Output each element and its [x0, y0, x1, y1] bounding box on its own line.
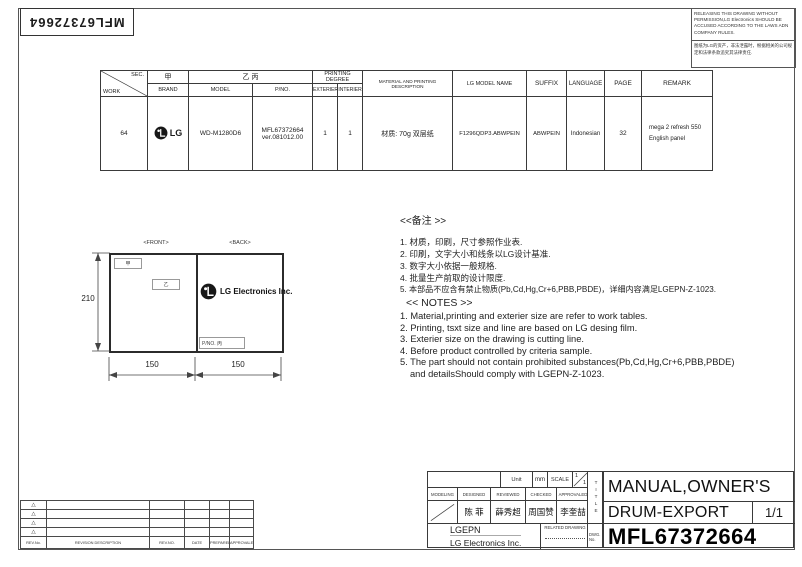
- spec-table: SEC. WORK 甲 乙 丙 PRINTING DEGREE MATERIAL…: [100, 70, 713, 171]
- scale-numerator: 1: [575, 473, 578, 479]
- title-block-grid: Unit mm SCALE 1 1 MODELING DESIGNED REVI…: [427, 471, 588, 548]
- note-en-5-continuation: and detailsShould comply with LGEPN-Z-10…: [400, 369, 745, 381]
- sec-header: SEC.: [131, 72, 144, 78]
- modeling-signature-cell: [428, 501, 458, 524]
- checked-header: CHECKED: [526, 488, 557, 501]
- company-short: LGEPN: [450, 525, 521, 536]
- note-en-2: 2. Printing, tsxt size and line are base…: [400, 323, 745, 335]
- jia-header: 甲: [148, 71, 189, 84]
- dim-back-width-label: 150: [218, 360, 258, 369]
- page-value: 32: [605, 97, 642, 171]
- title-vertical-cell: TITLE: [588, 472, 604, 524]
- designed-header: DESIGNED: [458, 488, 491, 501]
- pno-value-line2: ver.081012.00: [253, 134, 312, 141]
- unit-value: mm: [533, 472, 548, 488]
- prepared-header: PREPARED: [210, 537, 230, 549]
- scale-denominator: 1: [583, 480, 586, 486]
- designed-signature: 陈 菲: [458, 501, 491, 524]
- revision-row: △: [21, 528, 254, 537]
- note-en-1: 1. Material,printing and exterier size a…: [400, 311, 745, 323]
- dim-front-width-label: 150: [132, 360, 172, 369]
- title-block-right: MANUAL,OWNER'S DRUM-EXPORT 1/1 MFL673726…: [603, 471, 794, 548]
- remark-cell: mega 2 refresh 550 English panel: [642, 97, 713, 171]
- doc-title-line2: DRUM-EXPORT: [604, 502, 753, 524]
- pno-cell: MFL67372664 ver.081012.00: [253, 97, 313, 171]
- part-number-stamp-text: MFL67372664: [29, 15, 125, 30]
- unit-label: Unit: [501, 472, 533, 488]
- dim-height-label: 210: [78, 294, 98, 303]
- revision-header-row: REV.No. REVISION DESCRIPTION REV.NO. DAT…: [21, 537, 254, 549]
- note-cn-5: 5. 本部品不应含有禁止物质(Pb,Cd,Hg,Cr+6,PBB,PBDE)，详…: [400, 284, 735, 296]
- company-cell: LGEPN LG Electronics Inc.: [428, 524, 541, 549]
- confidentiality-warning-box: RELEASING THIS DRAWING WITHOUT PERMISSIO…: [691, 8, 796, 68]
- dimension-lines: [80, 233, 295, 393]
- lg-logo-word: LG: [170, 128, 183, 138]
- notes-english-title: << NOTES >>: [406, 297, 745, 309]
- revision-triangle-icon: △: [31, 520, 35, 526]
- language-value: Indonesian: [567, 97, 605, 171]
- rev-no-header: REV.No.: [21, 537, 47, 549]
- scale-value-cell: 1 1: [573, 472, 588, 488]
- notes-chinese-title: <<备注 >>: [400, 212, 735, 227]
- note-cn-1: 1. 材质，印刷，尺寸参照作业表.: [400, 236, 735, 248]
- revision-triangle-icon: △: [31, 502, 35, 508]
- sec-work-diagonal-cell: SEC. WORK: [101, 71, 148, 97]
- note-cn-3: 3. 数字大小依据一般规格.: [400, 260, 735, 272]
- warning-text-english: RELEASING THIS DRAWING WITHOUT PERMISSIO…: [692, 9, 795, 41]
- exterier-value: 1: [313, 97, 338, 171]
- remark-line1: mega 2 refresh 550: [649, 125, 712, 131]
- model-header: MODEL: [189, 84, 253, 97]
- brand-header: BRAND: [148, 84, 189, 97]
- material-value: 材质: 70g 双层纸: [363, 97, 453, 171]
- note-cn-2: 2. 印刷，文字大小和线条以LG设计基准.: [400, 248, 735, 260]
- dwg-number-cell: MFL67372664: [604, 524, 795, 549]
- revision-row: △: [21, 519, 254, 528]
- notes-english: << NOTES >> 1. Material,printing and ext…: [400, 297, 745, 381]
- lg-model-name-header: LG MODEL NAME: [453, 71, 527, 97]
- work-header: WORK: [103, 89, 120, 95]
- language-header: LANGUAGE: [567, 71, 605, 97]
- modeling-header: MODELING: [428, 488, 458, 501]
- lg-model-name-value: F1296QDP3.ABWPEIN: [453, 97, 527, 171]
- interier-header: INTERIER: [338, 84, 363, 97]
- related-drawing-cell: RELATED DRAWING: [541, 524, 589, 549]
- title-vertical-label: TITLE: [594, 480, 599, 515]
- revision-table: △ △ △ △ REV.No. REVISION DESCRIPTION REV…: [20, 500, 254, 549]
- yi-bing-header: 乙 丙: [189, 71, 313, 84]
- title-block-label-column: TITLE DWG. No.: [587, 471, 603, 548]
- revision-triangle-icon: △: [31, 511, 35, 517]
- revision-row: △: [21, 501, 254, 510]
- suffix-value: ABWPEIN: [527, 97, 567, 171]
- doc-title-line1: MANUAL,OWNER'S: [604, 472, 795, 502]
- related-drawing-label: RELATED DRAWING: [544, 525, 585, 530]
- pno-value-line1: MFL67372664: [253, 127, 312, 134]
- date-header: DATE: [185, 537, 210, 549]
- related-drawing-line: [545, 538, 586, 539]
- revision-triangle-icon: △: [31, 529, 35, 535]
- drawing-sheet: MFL67372664 RELEASING THIS DRAWING WITHO…: [0, 0, 802, 567]
- reviewed-header: REVIEWED: [491, 488, 526, 501]
- remark-header: REMARK: [642, 71, 713, 97]
- suffix-header: SUFFIX: [527, 71, 567, 97]
- exterier-header: EXTERIER: [313, 84, 338, 97]
- interier-value: 1: [338, 97, 363, 171]
- scale-label: SCALE: [548, 472, 573, 488]
- brand-cell: LG: [148, 97, 189, 171]
- reviewed-signature: 薛秀超: [491, 501, 526, 524]
- dwg-number-text: MFL67372664: [608, 524, 757, 549]
- note-en-3: 3. Exterier size on the drawing is cutti…: [400, 334, 745, 346]
- revision-description-header: REVISION DESCRIPTION: [47, 537, 150, 549]
- sheet-number: 1/1: [753, 502, 795, 524]
- note-en-4: 4. Before product controlled by criteria…: [400, 346, 745, 358]
- rev-no2-header: REV.NO.: [150, 537, 185, 549]
- approvaled-header: APPROVALED: [557, 488, 589, 501]
- page-header: PAGE: [605, 71, 642, 97]
- warning-text-chinese: 图纸为LG的资产，非法泄露时，根据相关的公司规定和法律条款追究其法律责任.: [692, 41, 795, 65]
- notes-chinese: <<备注 >> 1. 材质，印刷，尺寸参照作业表. 2. 印刷，文字大小和线条以…: [400, 212, 735, 296]
- printing-degree-header: PRINTING DEGREE: [313, 71, 363, 84]
- company-full: LG Electronics Inc.: [450, 538, 521, 548]
- note-en-5: 5. The part should not contain prohibite…: [400, 357, 745, 369]
- slash-icon: [428, 501, 457, 524]
- material-header: MATERIAL AND PRINTING DESCRIPTION: [363, 71, 453, 97]
- lg-logo-icon: [154, 126, 168, 140]
- doc-title-text1: MANUAL,OWNER'S: [608, 476, 771, 497]
- model-value: WD-M1280D6: [189, 97, 253, 171]
- revision-row: △: [21, 510, 254, 519]
- pno-header: P/NO.: [253, 84, 313, 97]
- doc-title-text2: DRUM-EXPORT: [608, 504, 729, 522]
- part-number-stamp: MFL67372664: [20, 8, 134, 36]
- approvaled-header: APPROVALED: [230, 537, 254, 549]
- checked-signature: 周国赞: [526, 501, 557, 524]
- note-cn-4: 4. 批量生产前取的设计限度.: [400, 272, 735, 284]
- work-value: 64: [101, 97, 148, 171]
- approved-signature: 李奎喆: [557, 501, 589, 524]
- title-block-blank-cell: [428, 472, 501, 488]
- dwg-no-label: DWG. No.: [588, 524, 604, 549]
- remark-line2: English panel: [649, 136, 712, 142]
